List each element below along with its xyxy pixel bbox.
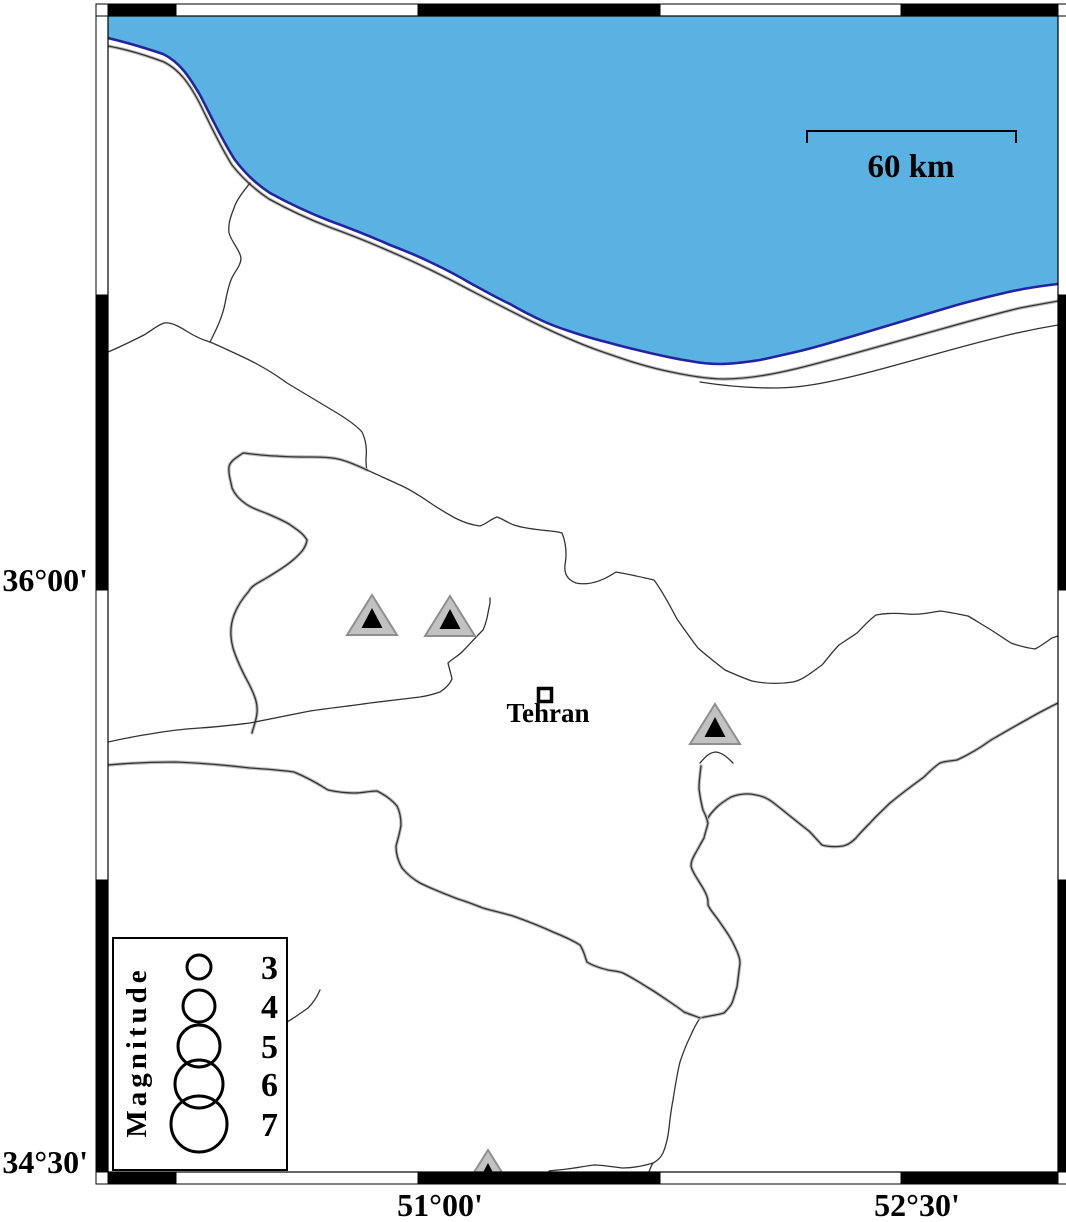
map-canvas: Tehran 60 km Magnitude 3 4 5 6 7 (0, 0, 1066, 1222)
magnitude-label-7: 7 (261, 1107, 278, 1144)
border-tail-branch (549, 1163, 653, 1171)
magnitude-label-6: 6 (261, 1067, 278, 1104)
lat-label-36-00: 36°00' (2, 562, 88, 598)
magnitude-label-5: 5 (261, 1029, 278, 1066)
caspian-sea (108, 16, 1058, 364)
magnitude-legend: Magnitude 3 4 5 6 7 (113, 938, 287, 1170)
hill-arc (700, 752, 733, 763)
frame-corner-bl (96, 1172, 108, 1184)
border-valley-shadow (707, 703, 1058, 847)
tehran-label: Tehran (506, 698, 589, 728)
border-line-southwest (108, 598, 490, 742)
seismicity-map: Tehran 60 km Magnitude 3 4 5 6 7 (0, 0, 1066, 1222)
river-line (229, 453, 367, 733)
border-line-north (210, 183, 250, 342)
border-line-west (108, 323, 367, 470)
lat-label-34-30: 34°30' (2, 1144, 88, 1180)
border-vertical-shadow (691, 766, 740, 1018)
magnitude-label-3: 3 (261, 950, 278, 987)
border-valley-line (707, 703, 1058, 847)
border-line-east-long (367, 470, 1058, 683)
river-shadow (229, 453, 367, 733)
border-tail-line (649, 1018, 700, 1172)
volcano-markers (347, 595, 740, 1190)
legend-title: Magnitude (121, 966, 153, 1137)
frame-corner-br (1058, 1172, 1066, 1184)
border-stub (287, 990, 320, 1022)
lon-label-51-00: 51°00' (397, 1187, 483, 1222)
frame-corner-tr (1058, 4, 1066, 16)
border-vertical-line (691, 766, 740, 1018)
frame-corner-tl (96, 4, 108, 16)
lon-label-52-30: 52°30' (874, 1187, 960, 1222)
scale-bar-label: 60 km (867, 149, 954, 185)
magnitude-label-4: 4 (261, 989, 278, 1026)
